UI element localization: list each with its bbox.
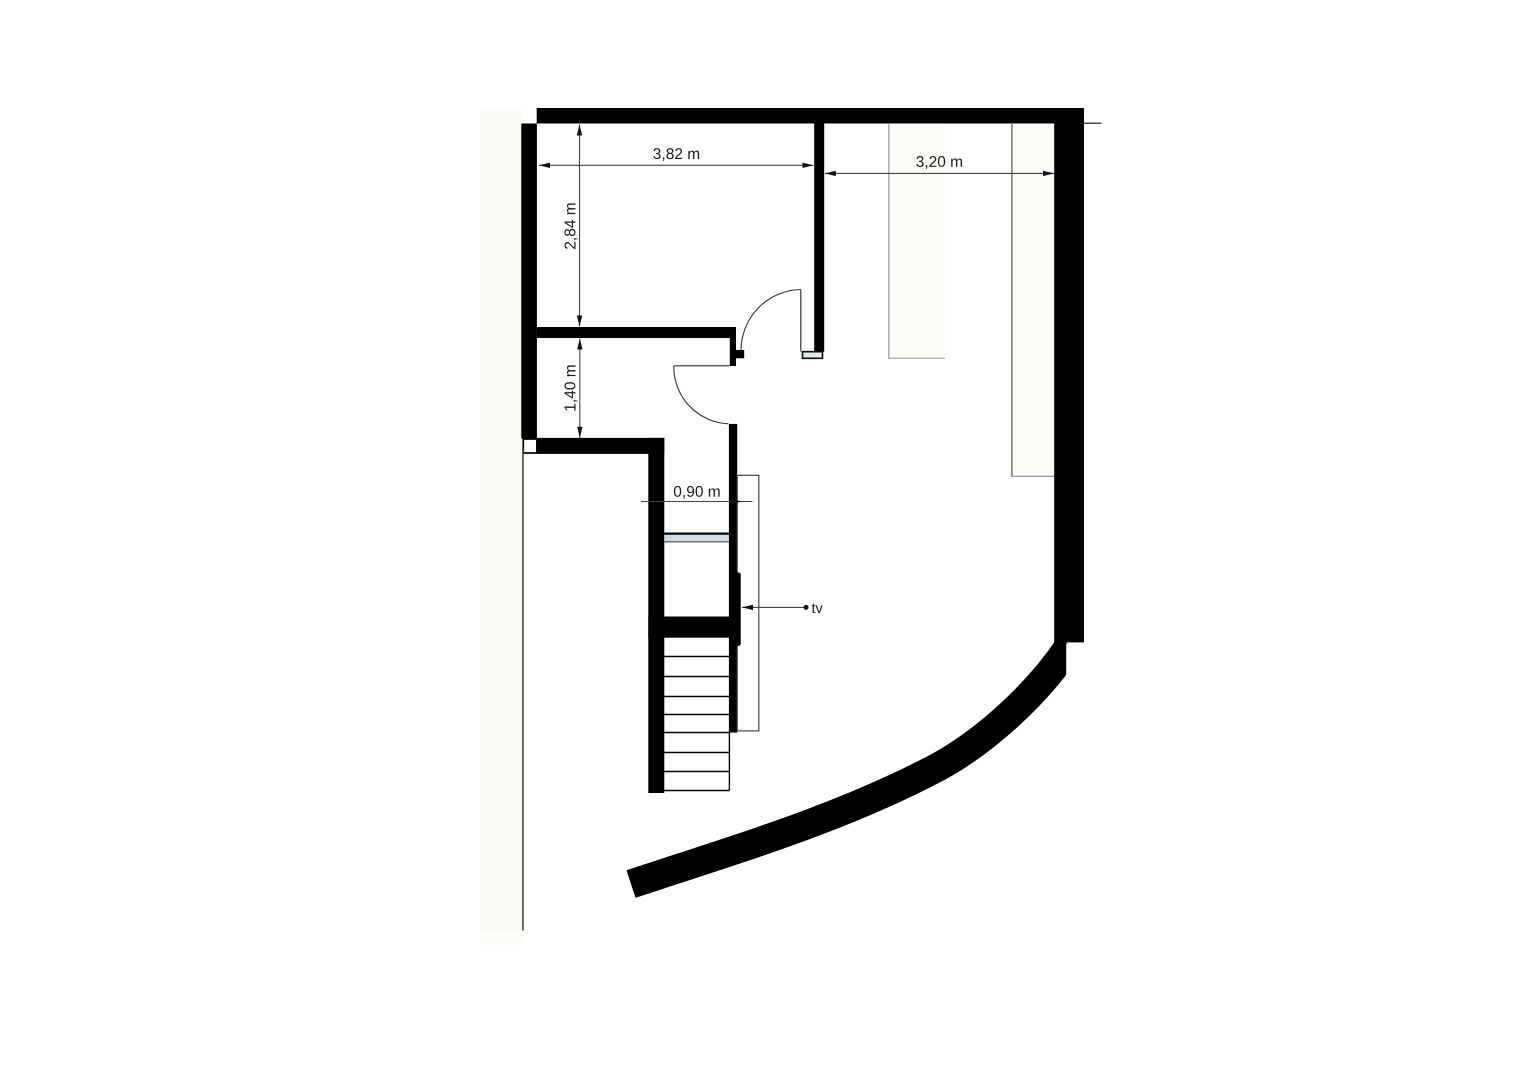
svg-text:tv: tv	[811, 601, 823, 617]
svg-text:3,82 m: 3,82 m	[653, 146, 700, 163]
svg-text:3,20 m: 3,20 m	[916, 154, 963, 171]
svg-text:1,40 m: 1,40 m	[563, 364, 580, 411]
svg-text:2,84 m: 2,84 m	[562, 202, 579, 249]
svg-text:0,90 m: 0,90 m	[673, 484, 720, 501]
